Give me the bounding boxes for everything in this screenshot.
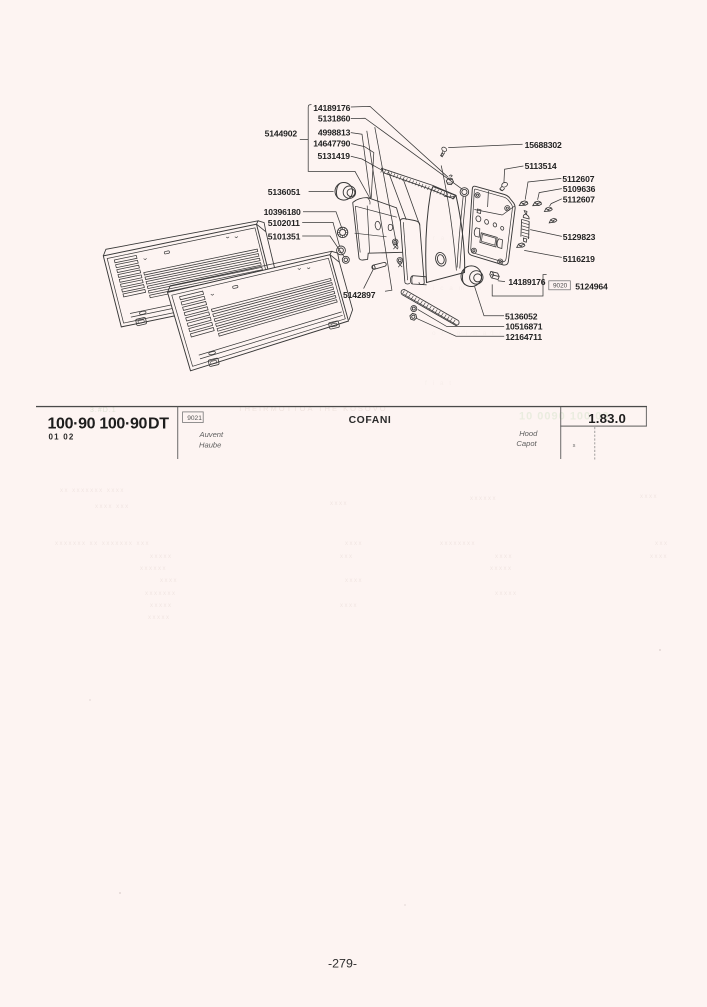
svg-text:xxxxx: xxxxx	[150, 554, 173, 560]
svg-text:5112607: 5112607	[563, 195, 595, 205]
svg-text:xxx: xxx	[340, 554, 354, 560]
svg-text:5131860: 5131860	[318, 114, 351, 124]
svg-text:-279-: -279-	[328, 956, 357, 970]
svg-text:15688302: 15688302	[525, 140, 562, 150]
svg-text:12164711: 12164711	[505, 332, 542, 342]
svg-text:xxxxx: xxxxx	[490, 566, 513, 572]
svg-text:14189176: 14189176	[313, 103, 350, 113]
svg-text:5112607: 5112607	[562, 174, 594, 184]
svg-text:5113514: 5113514	[525, 161, 557, 171]
svg-text:100·90 100·90DT: 100·90 100·90DT	[48, 416, 170, 433]
svg-text:5101351: 5101351	[268, 232, 301, 242]
svg-text:10396180: 10396180	[264, 207, 301, 217]
svg-text:xxx: xxx	[655, 541, 669, 547]
svg-text:xxxxxx: xxxxxx	[470, 496, 497, 502]
svg-text:5109636: 5109636	[563, 184, 596, 194]
svg-text:xxxxx: xxxxx	[150, 603, 173, 609]
svg-text:xxxx xxx: xxxx xxx	[95, 504, 130, 510]
svg-text:xxxx: xxxx	[640, 494, 658, 500]
svg-text:Haube: Haube	[199, 441, 221, 450]
svg-text:xxxxx: xxxxx	[148, 615, 171, 621]
svg-text:xxxx: xxxx	[345, 541, 363, 547]
svg-text:5116219: 5116219	[563, 254, 595, 264]
svg-text:5142897: 5142897	[343, 290, 376, 300]
svg-text:s: s	[573, 443, 576, 449]
svg-text:14647790: 14647790	[313, 139, 350, 149]
svg-text:5144902: 5144902	[265, 129, 298, 139]
svg-text:xxxx: xxxx	[330, 501, 348, 507]
svg-text:xxxxxxx: xxxxxxx	[145, 591, 177, 597]
svg-text:01 02: 01 02	[49, 432, 75, 441]
svg-text:xxxx: xxxx	[345, 578, 363, 584]
svg-text:f i a t: f i a t	[425, 380, 453, 387]
svg-text:9021: 9021	[187, 415, 202, 422]
svg-text:xxxx: xxxx	[340, 603, 358, 609]
svg-text:xxxx: xxxx	[650, 554, 668, 560]
svg-text:5136052: 5136052	[505, 311, 538, 321]
svg-text:THEIRMOTTOA THE KOSOVO: THEIRMOTTOA THE KOSOVO	[238, 404, 388, 413]
svg-text:1.83.0: 1.83.0	[588, 411, 626, 426]
svg-text:5131419: 5131419	[318, 151, 351, 161]
svg-text:xxxxxxxx: xxxxxxxx	[440, 541, 476, 547]
svg-text:xxxxx: xxxxx	[495, 591, 518, 597]
svg-text:Auvent: Auvent	[199, 430, 225, 439]
svg-text:Capot: Capot	[516, 439, 537, 448]
svg-text:Hood: Hood	[519, 429, 538, 438]
svg-text:COFANI: COFANI	[349, 415, 392, 426]
svg-text:9020: 9020	[553, 283, 568, 290]
svg-text:5124964: 5124964	[575, 282, 608, 292]
svg-text:xxxx: xxxx	[160, 578, 178, 584]
svg-text:xxxx: xxxx	[495, 554, 513, 560]
svg-text:3.#D.1: 3.#D.1	[90, 407, 117, 414]
svg-text:10516871: 10516871	[505, 322, 542, 332]
svg-text:4998813: 4998813	[318, 128, 351, 138]
svg-text:xx xxxxxxx xxxx: xx xxxxxxx xxxx	[60, 488, 125, 494]
svg-text:5136051: 5136051	[268, 187, 301, 197]
svg-text:5102011: 5102011	[268, 218, 300, 228]
svg-text:14189176: 14189176	[508, 277, 545, 287]
svg-text:t r a t t o r i: t r a t t o r i	[425, 235, 486, 242]
svg-text:5129823: 5129823	[563, 232, 596, 242]
svg-text:xxxxxxx xx xxxxxxx xxx: xxxxxxx xx xxxxxxx xxx	[55, 541, 150, 547]
svg-text:xxxxxx: xxxxxx	[140, 566, 167, 572]
